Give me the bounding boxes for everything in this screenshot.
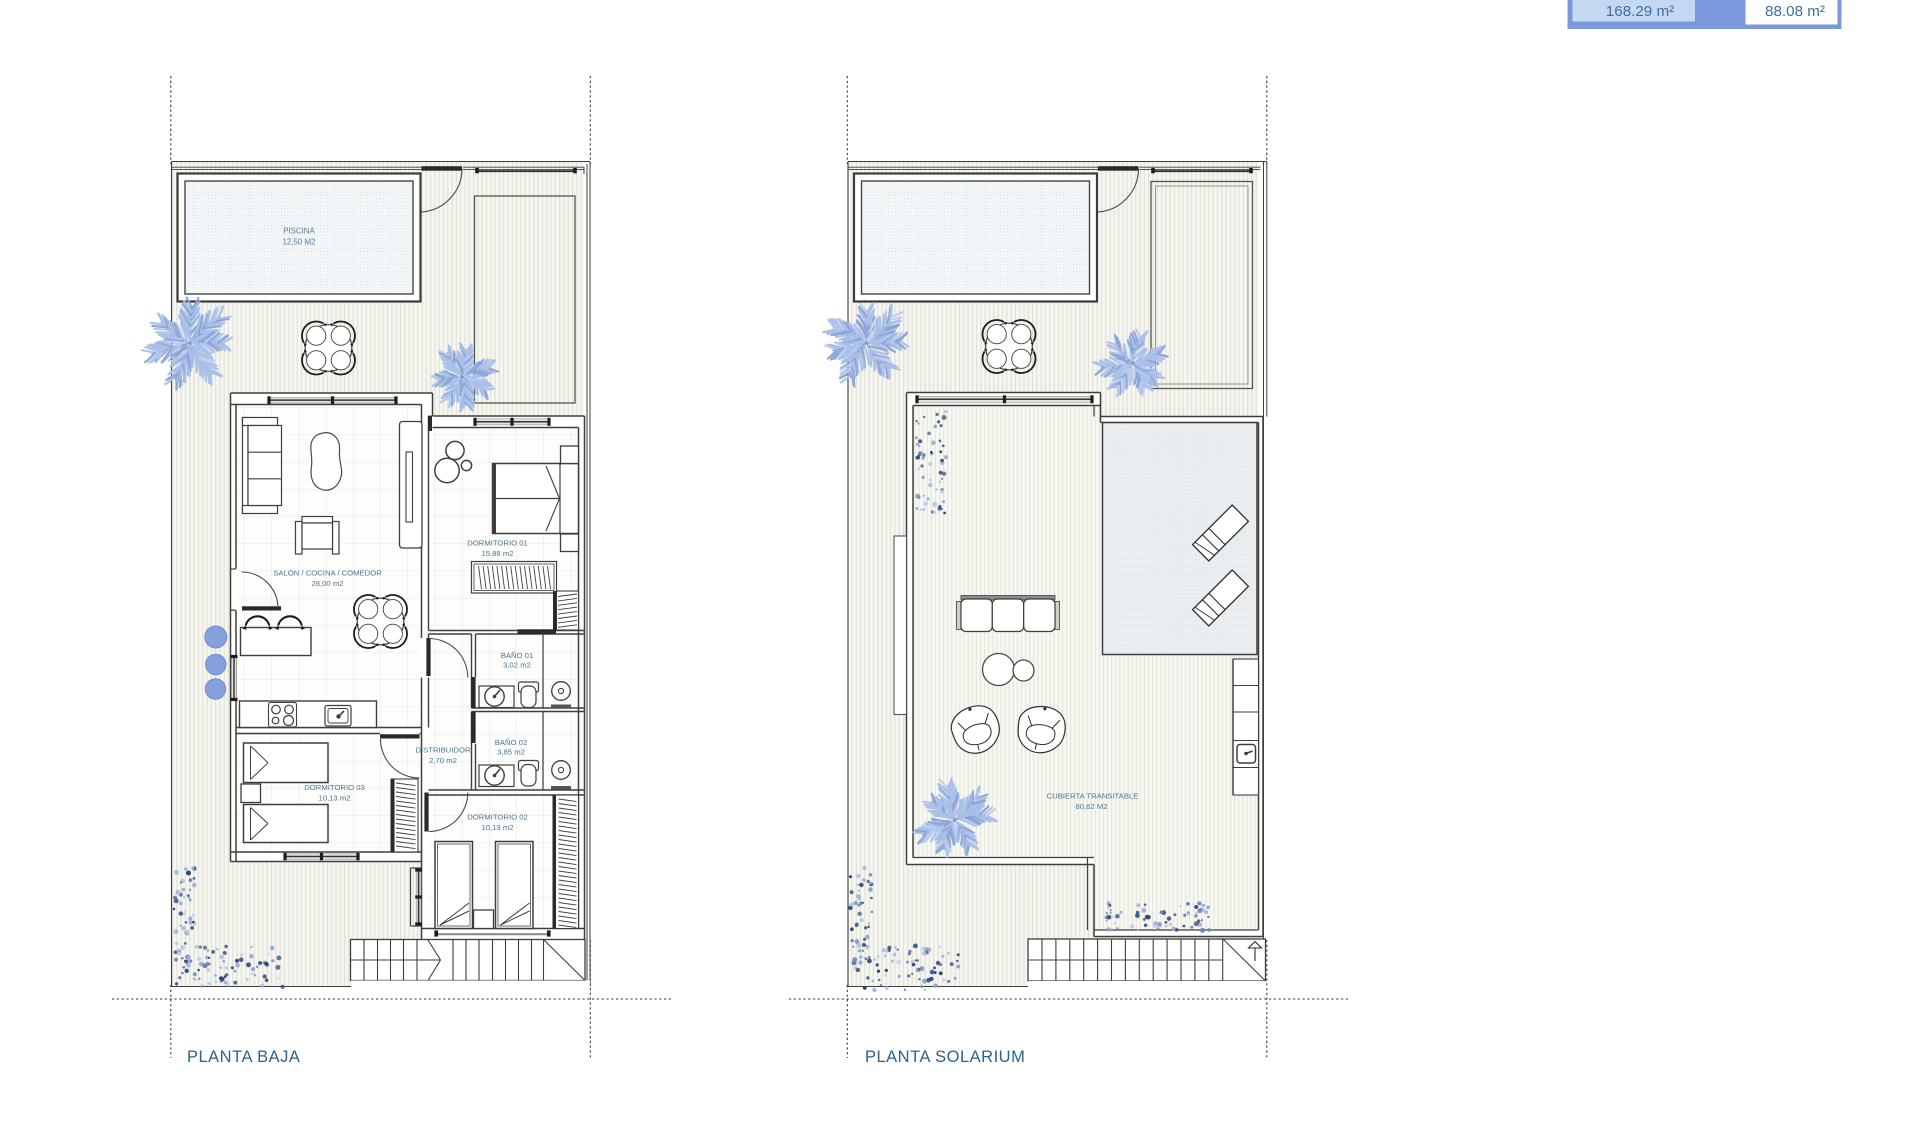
svg-text:12,50 M2: 12,50 M2	[283, 238, 316, 247]
svg-text:PLANTA BAJA: PLANTA BAJA	[187, 1048, 300, 1066]
svg-text:3,02 m2: 3,02 m2	[503, 661, 531, 670]
svg-text:28,00 m2: 28,00 m2	[311, 579, 343, 588]
svg-text:3,85 m2: 3,85 m2	[497, 748, 525, 757]
svg-text:CUBIERTA TRANSITABLE: CUBIERTA TRANSITABLE	[1047, 792, 1139, 801]
svg-text:SALÓN / COCINA / COMEDOR: SALÓN / COCINA / COMEDOR	[273, 569, 382, 578]
svg-text:10,13 m2: 10,13 m2	[318, 794, 350, 803]
svg-text:DORMITORIO 03: DORMITORIO 03	[304, 783, 365, 792]
svg-text:80,62 M2: 80,62 M2	[1075, 802, 1107, 811]
svg-text:BAÑO 01: BAÑO 01	[501, 651, 533, 660]
svg-text:PLANTA SOLARIUM: PLANTA SOLARIUM	[865, 1048, 1025, 1066]
svg-text:168.29 m²: 168.29 m²	[1606, 3, 1674, 20]
svg-text:DISTRIBUIDOR: DISTRIBUIDOR	[415, 746, 471, 755]
svg-text:88.08 m²: 88.08 m²	[1765, 3, 1825, 20]
svg-text:BAÑO 02: BAÑO 02	[495, 738, 527, 747]
svg-text:15,88 m2: 15,88 m2	[481, 549, 513, 558]
svg-text:2,70 m2: 2,70 m2	[429, 756, 457, 765]
svg-text:DORMITORIO 01: DORMITORIO 01	[467, 539, 528, 548]
svg-text:DORMITORIO 02: DORMITORIO 02	[467, 813, 528, 822]
svg-text:PISCINA: PISCINA	[283, 227, 315, 236]
svg-text:10,13 m2: 10,13 m2	[481, 823, 513, 832]
